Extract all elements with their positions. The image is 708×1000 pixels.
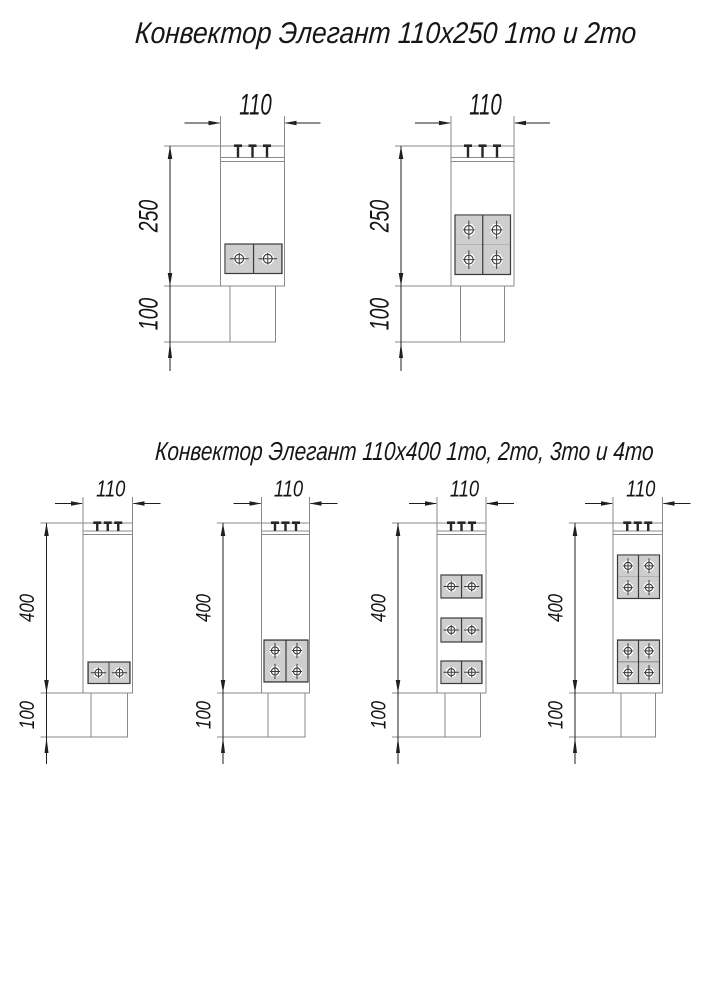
base-plinth bbox=[91, 693, 128, 737]
convector-drawing-2то: 110400100 bbox=[193, 477, 338, 764]
height-dimension-label: 400 bbox=[16, 594, 39, 622]
dimension-width: 110 bbox=[585, 477, 691, 523]
heat-exchanger bbox=[441, 575, 482, 598]
section-title-110x250: Конвектор Элегант 110x250 1то и 2то bbox=[134, 19, 637, 49]
width-dimension-label: 110 bbox=[96, 477, 126, 502]
height-dimension-label: 400 bbox=[193, 594, 216, 622]
height-dimension-label: 400 bbox=[545, 594, 568, 622]
convector-drawing-4то: 110400100 bbox=[545, 477, 691, 764]
heat-exchanger bbox=[264, 640, 308, 682]
convector-drawings-canvas: 1102501001102501001104001001104001001104… bbox=[0, 0, 708, 1000]
width-dimension-label: 110 bbox=[450, 477, 480, 502]
base-plinth bbox=[445, 693, 481, 737]
base-dimension-label: 100 bbox=[368, 701, 391, 729]
height-dimension-label: 250 bbox=[364, 200, 394, 233]
width-dimension-label: 110 bbox=[239, 89, 272, 122]
base-dimension-label: 100 bbox=[133, 298, 163, 330]
heat-exchanger bbox=[618, 640, 660, 684]
dimension-width: 110 bbox=[234, 477, 338, 523]
height-dimension-label: 250 bbox=[133, 200, 163, 233]
base-dimension-label: 100 bbox=[16, 701, 39, 729]
drawing-sheet: Конвектор Элегант 110x250 1то и 2то Конв… bbox=[0, 0, 708, 1000]
base-dimension-label: 100 bbox=[364, 298, 394, 330]
width-dimension-label: 110 bbox=[274, 477, 304, 502]
heat-exchanger bbox=[88, 662, 130, 684]
dimension-width: 110 bbox=[415, 89, 550, 146]
base-plinth bbox=[268, 693, 305, 737]
dimension-width: 110 bbox=[185, 89, 321, 146]
heat-exchanger bbox=[455, 215, 511, 275]
base-plinth bbox=[230, 286, 276, 342]
heat-exchanger bbox=[441, 661, 482, 684]
dimension-width: 110 bbox=[55, 477, 161, 523]
base-dimension-label: 100 bbox=[545, 701, 568, 729]
heat-exchanger bbox=[225, 244, 282, 274]
convector-drawing-1то: 110250100 bbox=[133, 89, 320, 371]
dimension-width: 110 bbox=[409, 477, 514, 523]
base-plinth bbox=[621, 693, 656, 737]
convector-drawing-1то: 110400100 bbox=[16, 477, 160, 764]
section-title-110x400: Конвектор Элегант 110x400 1то, 2то, 3то … bbox=[155, 438, 655, 464]
width-dimension-label: 110 bbox=[626, 477, 656, 502]
base-dimension-label: 100 bbox=[193, 701, 216, 729]
width-dimension-label: 110 bbox=[469, 89, 502, 122]
convector-drawing-3то: 110400100 bbox=[368, 477, 514, 764]
heat-exchanger bbox=[441, 618, 482, 642]
heat-exchanger bbox=[618, 555, 660, 599]
height-dimension-label: 400 bbox=[368, 594, 391, 622]
base-plinth bbox=[461, 286, 505, 342]
convector-drawing-2то: 110250100 bbox=[364, 89, 550, 371]
